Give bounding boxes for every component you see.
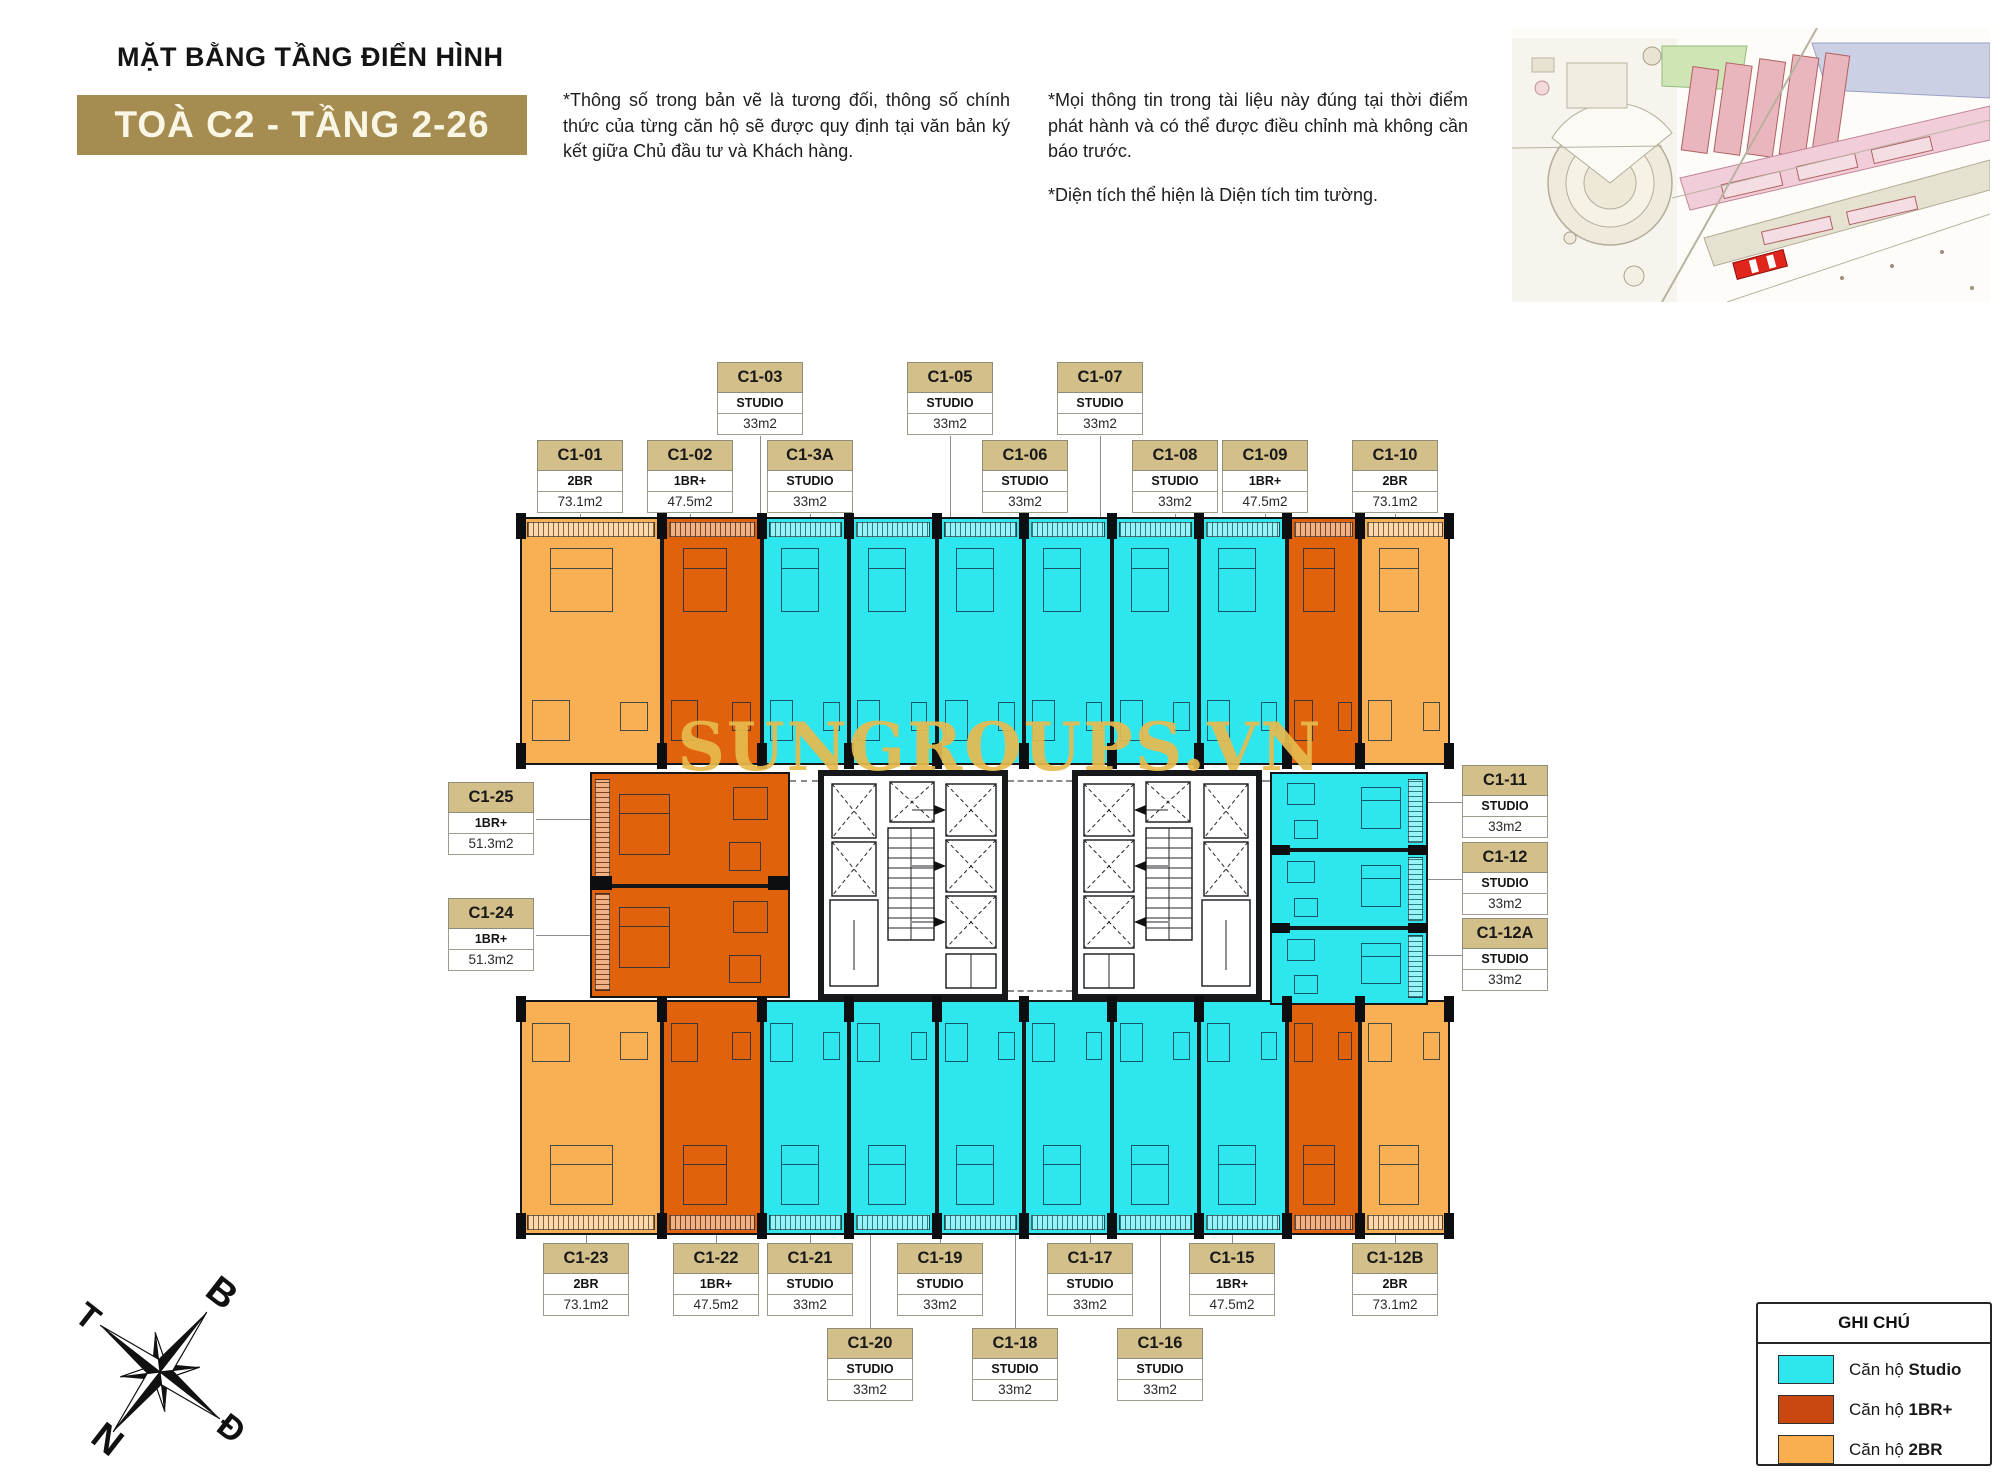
bed: [1218, 1145, 1257, 1205]
legend-swatch-2br: [1778, 1435, 1834, 1464]
unit-card-area: 33m2: [1462, 970, 1548, 991]
bed: [868, 548, 907, 611]
pillow: [1362, 866, 1400, 879]
wall-pier: [1444, 743, 1454, 769]
bath: [1120, 1023, 1143, 1062]
unit-card-C1-07: C1-07STUDIO33m2: [1057, 362, 1143, 435]
unit-card-type: STUDIO: [972, 1359, 1058, 1380]
pillow: [1304, 549, 1334, 568]
unit-card-C1-06: C1-06STUDIO33m2: [982, 440, 1068, 513]
unit-card-area: 33m2: [1047, 1295, 1133, 1316]
wall-pier: [757, 513, 767, 539]
card-connector-line: [1428, 802, 1462, 803]
wall-pier: [932, 996, 942, 1022]
unit-card-type: STUDIO: [1132, 471, 1218, 492]
bed: [619, 794, 670, 856]
wall-pier: [1282, 513, 1292, 539]
table: [729, 955, 760, 983]
unit-card-area: 73.1m2: [543, 1295, 629, 1316]
unit-card-C1-22: C1-221BR+47.5m2: [673, 1243, 759, 1316]
bed: [1379, 548, 1419, 611]
unit-card-area: 33m2: [1462, 817, 1548, 838]
bed: [550, 548, 613, 611]
unit-card-area: 51.3m2: [448, 950, 534, 971]
unit-card-type: 1BR+: [647, 471, 733, 492]
unit-card-type: 1BR+: [448, 813, 534, 834]
table: [1294, 820, 1319, 839]
bed: [1218, 548, 1257, 611]
compass-north-label: B: [198, 1268, 245, 1318]
unit-card-area: 47.5m2: [673, 1295, 759, 1316]
bed: [619, 907, 670, 967]
card-connector-line: [1100, 436, 1101, 517]
bed: [1043, 548, 1082, 611]
pillow: [551, 1146, 612, 1164]
balcony-hatch: [856, 522, 930, 537]
unit-card-id: C1-12: [1462, 842, 1548, 873]
disclaimer-text-1: *Thông số trong bản vẽ là tương đối, thô…: [563, 88, 1010, 165]
unit-card-id: C1-05: [907, 362, 993, 393]
balcony-hatch: [769, 1215, 842, 1230]
wall-pier: [1194, 1213, 1204, 1239]
table: [1086, 1032, 1103, 1060]
unit-card-id: C1-3A: [767, 440, 853, 471]
wall-pier: [657, 1213, 667, 1239]
watermark: SUNGROUPS.VN: [640, 708, 1360, 786]
balcony-hatch: [1408, 779, 1423, 843]
unit-card-id: C1-25: [448, 782, 534, 813]
balcony-hatch: [944, 1215, 1017, 1230]
site-location-map: [1512, 28, 1990, 302]
bath: [770, 1023, 793, 1062]
unit-card-area: 47.5m2: [1222, 492, 1308, 513]
table: [823, 1032, 840, 1060]
card-connector-line: [536, 819, 592, 820]
unit-card-C1-18: C1-18STUDIO33m2: [972, 1328, 1058, 1401]
plan-unit-C1-12A: [1270, 928, 1428, 1005]
card-connector-line: [1428, 955, 1462, 956]
unit-card-type: STUDIO: [1462, 873, 1548, 894]
balcony-hatch: [527, 1215, 655, 1230]
corridor-dashed-line: [1008, 990, 1072, 992]
balcony-hatch: [1408, 935, 1423, 998]
plan-unit-C1-25: [590, 772, 790, 886]
unit-card-type: STUDIO: [1057, 393, 1143, 414]
balcony-hatch: [1031, 1215, 1105, 1230]
plan-unit-C1-20: [849, 1000, 937, 1235]
balcony-hatch: [1367, 522, 1443, 537]
table: [732, 1032, 751, 1060]
card-connector-line: [870, 1235, 871, 1328]
unit-card-type: STUDIO: [982, 471, 1068, 492]
pillow: [684, 1146, 726, 1164]
bath: [1032, 1023, 1056, 1062]
unit-card-type: 1BR+: [448, 929, 534, 950]
wall-pier: [1107, 996, 1117, 1022]
balcony-hatch: [1031, 522, 1105, 537]
legend-item-2br: Căn hộ 2BR: [1778, 1435, 1990, 1464]
disclaimer-right: *Mọi thông tin trong tài liệu này đúng t…: [1048, 88, 1468, 226]
unit-card-id: C1-01: [537, 440, 623, 471]
unit-card-area: 33m2: [982, 492, 1068, 513]
pillow: [1362, 944, 1400, 957]
unit-card-area: 47.5m2: [647, 492, 733, 513]
bed: [1361, 865, 1401, 906]
unit-card-type: STUDIO: [827, 1359, 913, 1380]
legend-item-studio: Căn hộ Studio: [1778, 1355, 1990, 1384]
balcony-hatch: [595, 779, 610, 879]
bed: [550, 1145, 613, 1205]
wall-pier: [1408, 845, 1428, 855]
unit-card-id: C1-03: [717, 362, 803, 393]
wall-pier: [932, 1213, 942, 1239]
wall-pier: [1408, 923, 1428, 933]
bed: [781, 548, 819, 611]
legend-title: GHI CHÚ: [1758, 1304, 1990, 1344]
pillow: [957, 549, 993, 568]
unit-card-area: 51.3m2: [448, 834, 534, 855]
unit-card-id: C1-21: [767, 1243, 853, 1274]
pillow: [1380, 1146, 1418, 1164]
unit-card-C1-08: C1-08STUDIO33m2: [1132, 440, 1218, 513]
unit-card-id: C1-10: [1352, 440, 1438, 471]
unit-card-C1-19: C1-19STUDIO33m2: [897, 1243, 983, 1316]
unit-card-id: C1-15: [1189, 1243, 1275, 1274]
unit-card-C1-01: C1-012BR73.1m2: [537, 440, 623, 513]
table: [911, 1032, 928, 1060]
pillow: [782, 549, 818, 568]
wall-pier: [1444, 1213, 1454, 1239]
legend-label-1br: 1BR+: [1909, 1400, 1953, 1419]
table: [1423, 702, 1440, 731]
unit-card-type: 1BR+: [673, 1274, 759, 1295]
wall-pier: [516, 996, 526, 1022]
disclaimer-text-2: *Mọi thông tin trong tài liệu này đúng t…: [1048, 88, 1468, 165]
legend-label-2br-prefix: Căn hộ: [1849, 1440, 1909, 1459]
legend-label-1br-prefix: Căn hộ: [1849, 1400, 1909, 1419]
pillow: [1304, 1146, 1334, 1164]
wall-pier: [1019, 1213, 1029, 1239]
compass-east-label: Đ: [210, 1406, 253, 1451]
bath: [1368, 700, 1392, 741]
disclaimer-left: *Thông số trong bản vẽ là tương đối, thô…: [563, 88, 1010, 183]
balcony-hatch: [1206, 522, 1280, 537]
compass-rose: B Đ N T: [55, 1262, 265, 1472]
unit-card-area: 33m2: [1462, 894, 1548, 915]
unit-card-area: 33m2: [1132, 492, 1218, 513]
card-connector-line: [586, 1235, 587, 1243]
compass-south-label: N: [83, 1415, 130, 1465]
card-connector-line: [1232, 1235, 1233, 1243]
unit-card-area: 73.1m2: [537, 492, 623, 513]
core-stairs-elevators-right: [1072, 770, 1262, 1000]
balcony-hatch: [595, 893, 610, 991]
unit-card-id: C1-24: [448, 898, 534, 929]
unit-card-C1-24: C1-241BR+51.3m2: [448, 898, 534, 971]
table: [620, 1032, 648, 1060]
unit-card-id: C1-18: [972, 1328, 1058, 1359]
table: [1423, 1032, 1440, 1060]
wall-pier: [1019, 996, 1029, 1022]
wall-pier: [844, 513, 854, 539]
unit-card-type: 2BR: [1352, 471, 1438, 492]
card-connector-line: [536, 935, 592, 936]
unit-card-id: C1-20: [827, 1328, 913, 1359]
plan-unit-C1-17: [1112, 1000, 1199, 1235]
wall-pier: [590, 880, 612, 890]
plan-unit-C1-19: [937, 1000, 1024, 1235]
bed: [1043, 1145, 1082, 1205]
pillow: [684, 549, 726, 568]
unit-card-type: 1BR+: [1189, 1274, 1275, 1295]
unit-card-type: STUDIO: [767, 1274, 853, 1295]
bath: [1207, 1023, 1231, 1062]
unit-card-id: C1-23: [543, 1243, 629, 1274]
balcony-hatch: [856, 1215, 930, 1230]
wall-pier: [932, 513, 942, 539]
unit-card-C1-12A: C1-12ASTUDIO33m2: [1462, 918, 1548, 991]
balcony-hatch: [944, 522, 1017, 537]
pillow: [1362, 788, 1400, 801]
unit-card-id: C1-12B: [1352, 1243, 1438, 1274]
balcony-hatch: [1294, 522, 1353, 537]
plan-unit-C1-18: [1024, 1000, 1112, 1235]
pillow: [869, 549, 906, 568]
unit-card-area: 33m2: [907, 414, 993, 435]
unit-card-C1-12B: C1-12B2BR73.1m2: [1352, 1243, 1438, 1316]
unit-card-type: STUDIO: [897, 1274, 983, 1295]
unit-card-C1-15: C1-151BR+47.5m2: [1189, 1243, 1275, 1316]
plan-unit-C1-24: [590, 886, 790, 998]
unit-card-C1-09: C1-091BR+47.5m2: [1222, 440, 1308, 513]
unit-card-type: STUDIO: [907, 393, 993, 414]
card-connector-line: [760, 436, 761, 517]
card-connector-line: [716, 1235, 717, 1243]
bed: [1131, 548, 1169, 611]
unit-card-type: STUDIO: [767, 471, 853, 492]
pillow: [1044, 1146, 1081, 1164]
wall-pier: [1282, 996, 1292, 1022]
wall-pier: [1194, 996, 1204, 1022]
table: [1294, 975, 1319, 994]
bath: [945, 1023, 968, 1062]
bed: [1361, 943, 1401, 984]
card-connector-line: [1160, 1235, 1161, 1328]
unit-card-area: 73.1m2: [1352, 1295, 1438, 1316]
bath: [671, 1023, 698, 1062]
balcony-hatch: [527, 522, 655, 537]
unit-card-area: 33m2: [1117, 1380, 1203, 1401]
unit-card-C1-20: C1-20STUDIO33m2: [827, 1328, 913, 1401]
balcony-hatch: [1119, 1215, 1192, 1230]
unit-card-id: C1-17: [1047, 1243, 1133, 1274]
wall-pier: [516, 513, 526, 539]
unit-card-area: 73.1m2: [1352, 492, 1438, 513]
core-stairs-elevators-left: [818, 770, 1008, 1000]
pillow: [620, 795, 669, 814]
bed: [683, 1145, 727, 1205]
unit-card-area: 33m2: [972, 1380, 1058, 1401]
wall-pier: [1355, 513, 1365, 539]
legend-item-1br: Căn hộ 1BR+: [1778, 1395, 1990, 1424]
unit-card-id: C1-22: [673, 1243, 759, 1274]
pillow: [957, 1146, 993, 1164]
pillow: [1219, 1146, 1256, 1164]
unit-card-C1-25: C1-251BR+51.3m2: [448, 782, 534, 855]
unit-card-area: 33m2: [717, 414, 803, 435]
bed: [956, 548, 994, 611]
wall-pier: [1444, 513, 1454, 539]
unit-card-area: 33m2: [767, 492, 853, 513]
unit-card-type: STUDIO: [1117, 1359, 1203, 1380]
brochure-floorplan-page: MẶT BẰNG TẦNG ĐIỂN HÌNH TOÀ C2 - TẦNG 2-…: [0, 0, 2000, 1481]
unit-card-id: C1-11: [1462, 765, 1548, 796]
unit-card-C1-11: C1-11STUDIO33m2: [1462, 765, 1548, 838]
bed: [1303, 548, 1335, 611]
unit-card-area: 33m2: [767, 1295, 853, 1316]
table: [729, 842, 760, 871]
wall-pier: [1355, 996, 1365, 1022]
unit-card-type: 2BR: [1352, 1274, 1438, 1295]
unit-card-C1-16: C1-16STUDIO33m2: [1117, 1328, 1203, 1401]
wall-pier: [1444, 996, 1454, 1022]
unit-card-type: STUDIO: [717, 393, 803, 414]
pillow: [1219, 549, 1256, 568]
plan-unit-C1-21: [762, 1000, 849, 1235]
unit-card-id: C1-09: [1222, 440, 1308, 471]
unit-card-type: 2BR: [537, 471, 623, 492]
unit-card-id: C1-16: [1117, 1328, 1203, 1359]
unit-card-type: 1BR+: [1222, 471, 1308, 492]
wall-pier: [757, 996, 767, 1022]
plan-unit-C1-15: [1287, 1000, 1360, 1235]
pillow: [1132, 549, 1168, 568]
plan-unit-C1-12B: [1360, 1000, 1450, 1235]
bed: [956, 1145, 994, 1205]
unit-card-C1-02: C1-021BR+47.5m2: [647, 440, 733, 513]
bath: [733, 901, 768, 933]
wall-pier: [1355, 1213, 1365, 1239]
wall-pier: [1270, 845, 1290, 855]
compass-west-label: T: [68, 1295, 108, 1338]
balcony-hatch: [769, 522, 842, 537]
balcony-hatch: [1206, 1215, 1280, 1230]
unit-card-id: C1-12A: [1462, 918, 1548, 949]
card-connector-line: [1015, 1235, 1016, 1328]
bath: [1287, 939, 1315, 961]
wall-pier: [657, 996, 667, 1022]
pillow: [782, 1146, 818, 1164]
bath: [1294, 1023, 1313, 1062]
table: [1173, 1032, 1190, 1060]
unit-card-area: 33m2: [827, 1380, 913, 1401]
bath: [1287, 783, 1315, 805]
wall-pier: [1270, 923, 1290, 933]
plan-unit-C1-16: [1199, 1000, 1287, 1235]
table: [1338, 1032, 1352, 1060]
unit-card-C1-12: C1-12STUDIO33m2: [1462, 842, 1548, 915]
unit-card-C1-10: C1-102BR73.1m2: [1352, 440, 1438, 513]
unit-card-C1-21: C1-21STUDIO33m2: [767, 1243, 853, 1316]
wall-pier: [844, 996, 854, 1022]
pillow: [1380, 549, 1418, 568]
bed: [1131, 1145, 1169, 1205]
unit-card-C1-17: C1-17STUDIO33m2: [1047, 1243, 1133, 1316]
unit-card-type: STUDIO: [1462, 949, 1548, 970]
card-connector-line: [810, 1235, 811, 1243]
card-connector-line: [1090, 1235, 1091, 1243]
unit-card-id: C1-02: [647, 440, 733, 471]
unit-card-type: STUDIO: [1047, 1274, 1133, 1295]
balcony-hatch: [1408, 857, 1423, 921]
balcony-hatch: [669, 1215, 755, 1230]
bed: [683, 548, 727, 611]
legend: GHI CHÚ Căn hộ Studio Căn hộ 1BR+ Căn hộ…: [1756, 1302, 1992, 1466]
table: [1261, 1032, 1278, 1060]
balcony-hatch: [669, 522, 755, 537]
unit-card-id: C1-19: [897, 1243, 983, 1274]
bed: [1303, 1145, 1335, 1205]
bath: [733, 787, 768, 820]
unit-card-id: C1-08: [1132, 440, 1218, 471]
bed: [868, 1145, 907, 1205]
disclaimer-text-3: *Diện tích thể hiện là Diện tích tim tườ…: [1048, 183, 1468, 209]
wall-pier: [516, 1213, 526, 1239]
card-connector-line: [1428, 879, 1462, 880]
unit-card-id: C1-07: [1057, 362, 1143, 393]
pillow: [620, 908, 669, 927]
bath: [857, 1023, 881, 1062]
card-connector-line: [1395, 1235, 1396, 1243]
wall-pier: [1194, 513, 1204, 539]
table: [998, 1032, 1015, 1060]
unit-card-C1-3A: C1-3ASTUDIO33m2: [767, 440, 853, 513]
unit-card-area: 47.5m2: [1189, 1295, 1275, 1316]
plan-unit-C1-12: [1270, 850, 1428, 928]
unit-card-area: 33m2: [897, 1295, 983, 1316]
bath: [532, 1023, 571, 1062]
plan-unit-C1-22: [662, 1000, 762, 1235]
bath: [532, 700, 571, 741]
balcony-hatch: [1294, 1215, 1353, 1230]
pillow: [869, 1146, 906, 1164]
table: [1294, 898, 1319, 917]
bed: [1361, 787, 1401, 828]
wall-pier: [516, 743, 526, 769]
balcony-hatch: [1367, 1215, 1443, 1230]
legend-label-2br: 2BR: [1909, 1440, 1943, 1459]
wall-pier: [1107, 1213, 1117, 1239]
unit-card-type: 2BR: [543, 1274, 629, 1295]
wall-pier: [768, 880, 790, 890]
pillow: [1044, 549, 1081, 568]
bath: [1368, 1023, 1392, 1062]
wall-pier: [1107, 513, 1117, 539]
card-connector-line: [950, 436, 951, 517]
unit-card-type: STUDIO: [1462, 796, 1548, 817]
unit-card-id: C1-06: [982, 440, 1068, 471]
legend-label-studio-prefix: Căn hộ: [1849, 1360, 1909, 1379]
wall-pier: [1019, 513, 1029, 539]
legend-swatch-1br: [1778, 1395, 1834, 1424]
unit-card-C1-05: C1-05STUDIO33m2: [907, 362, 993, 435]
legend-swatch-studio: [1778, 1355, 1834, 1384]
bath: [1287, 861, 1315, 883]
unit-card-area: 33m2: [1057, 414, 1143, 435]
tower-floor-badge: TOÀ C2 - TẦNG 2-26: [77, 95, 527, 155]
plan-unit-C1-23: [520, 1000, 662, 1235]
legend-label-studio: Studio: [1909, 1360, 1962, 1379]
